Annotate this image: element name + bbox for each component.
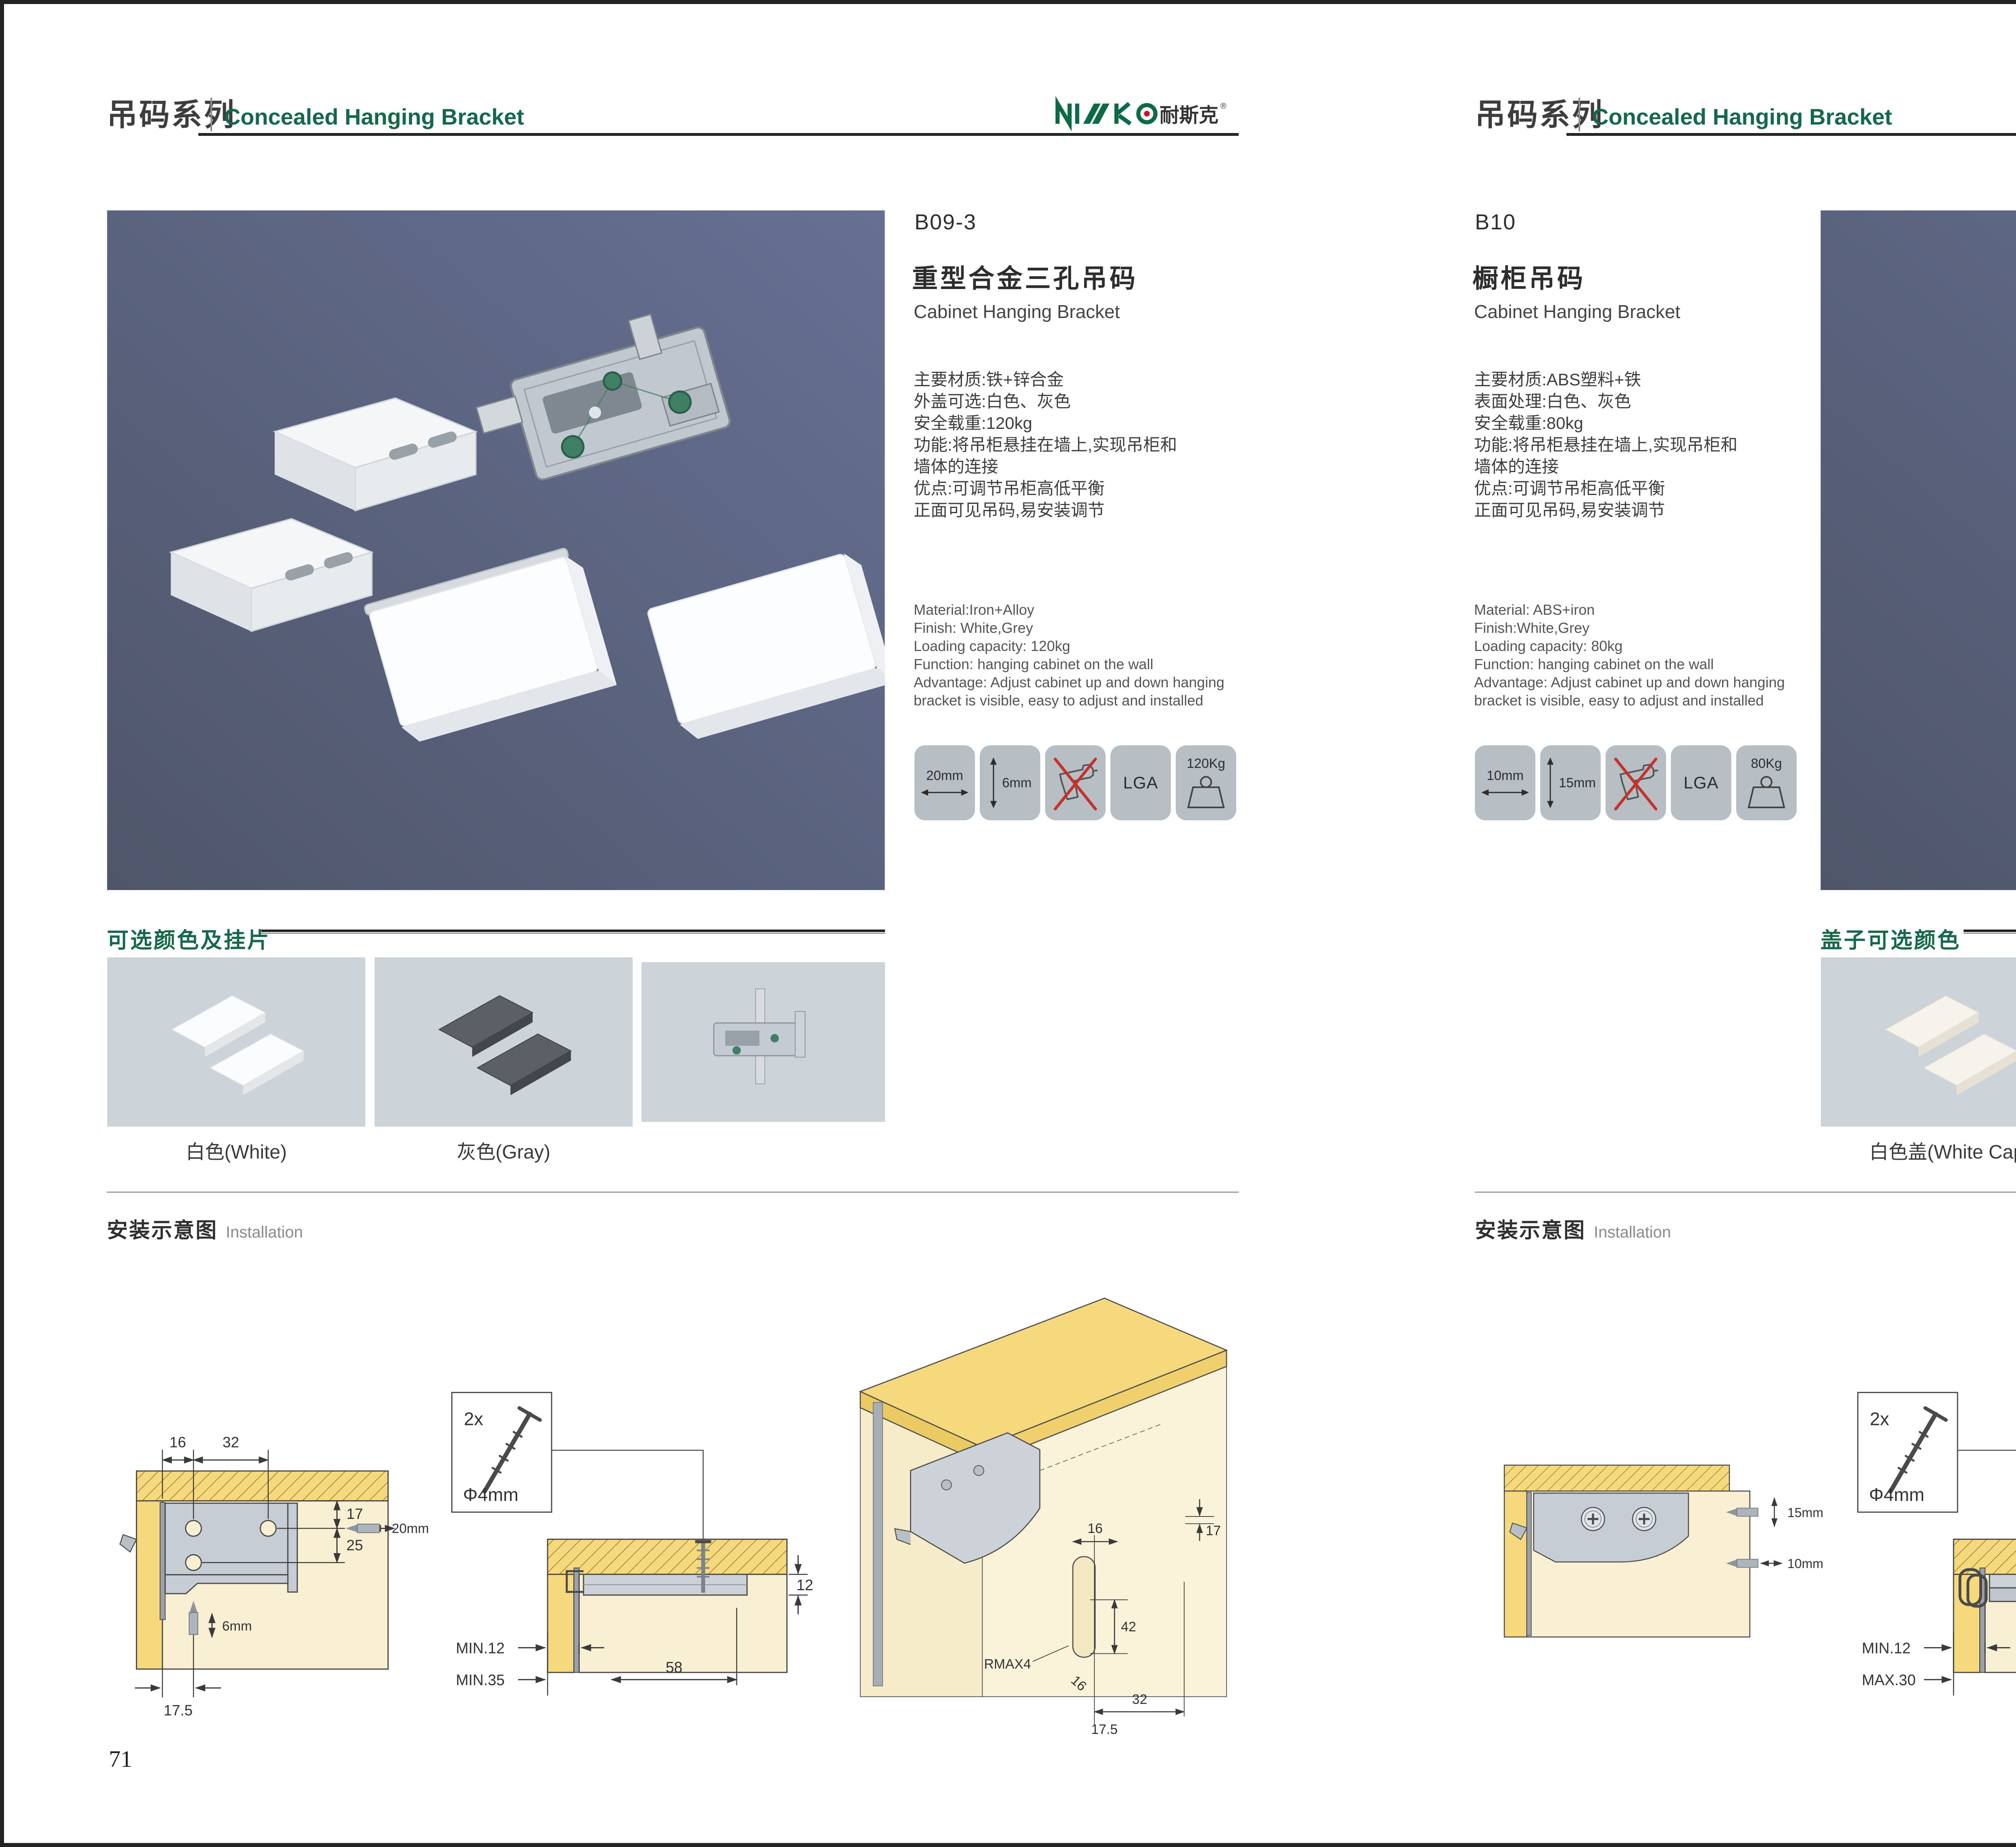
- brand-logo-left: 耐斯克 ®: [1054, 95, 1232, 132]
- spec-line: Loading capacity: 80kg: [1474, 637, 1785, 655]
- phillips-screw-1: [1581, 1508, 1605, 1531]
- load-capacity-icon: 120Kg: [1176, 745, 1236, 820]
- spec-line: 安全载重:120kg: [914, 412, 1177, 434]
- vertical-arrow-icon: [988, 757, 999, 808]
- product-name-en: Cabinet Hanging Bracket: [1474, 301, 1680, 322]
- installation-divider: [1475, 1192, 2016, 1193]
- spec-line: 优点:可调节吊柜高低平衡: [1474, 478, 1737, 499]
- spec-line: 表面处理:白色、灰色: [1474, 391, 1737, 412]
- header-rule-left: [198, 133, 1239, 136]
- screw-qty: 2x: [1870, 1409, 1889, 1429]
- spec-line: Advantage: Adjust cabinet up and down ha…: [914, 673, 1225, 691]
- installation-title-en: Installation: [1594, 1223, 1671, 1242]
- specs-zh: 主要材质:铁+锌合金 外盖可选:白色、灰色 安全载重:120kg 功能:将吊柜悬…: [914, 369, 1177, 521]
- spec-line: Loading capacity: 120kg: [914, 637, 1225, 655]
- product-code: B09-3: [914, 210, 977, 235]
- spec-line: 安全载重:80kg: [1474, 412, 1737, 434]
- series-title-zh-right: 吊码系列: [1475, 100, 1604, 131]
- dim-label: 15mm: [1787, 1505, 1823, 1520]
- no-drill-icon: [1045, 745, 1106, 820]
- dim-label: 32: [223, 1434, 239, 1451]
- spec-line: Finish:White,Grey: [1474, 619, 1785, 637]
- spec-line: 正面可见吊码,易安装调节: [1474, 499, 1737, 521]
- installation-title-zh: 安装示意图: [107, 1213, 218, 1244]
- spec-icon-row: 20mm 6mm LGA 120Kg: [914, 745, 1236, 820]
- dim-label: 12: [796, 1577, 813, 1593]
- dim-label: 17.5: [164, 1702, 193, 1719]
- swatch-label-white: 白色(White): [107, 1136, 366, 1164]
- swatch-label-gray: 灰色(Gray): [374, 1136, 633, 1164]
- no-drill-icon: [1606, 745, 1666, 820]
- specs-en: Material:Iron+Alloy Finish: White,Grey L…: [914, 601, 1225, 709]
- weight-glyph: [1742, 775, 1791, 810]
- drill-forbidden-glyph: [1611, 753, 1661, 813]
- weight-glyph: [1182, 775, 1230, 810]
- catalog-spread: 吊码系列 Concealed Hanging Bracket 耐斯克 ®: [0, 0, 2016, 1847]
- product-name-zh: 橱柜吊码: [1472, 258, 1585, 295]
- spec-line: 优点:可调节吊柜高低平衡: [914, 478, 1177, 499]
- swatch-white: [107, 957, 366, 1127]
- install-diagram-screws-left: 2x Φ4mm 12 MIN.12 MIN.35 58: [440, 1369, 815, 1712]
- dim-label: 17.5: [1091, 1722, 1118, 1737]
- spec-line: 主要材质:铁+锌合金: [914, 369, 1177, 391]
- spec-line: 墙体的连接: [914, 456, 1177, 478]
- spec-line: Function: hanging cabinet on the wall: [1474, 655, 1785, 673]
- installation-title: 安装示意图 Installation: [1475, 1213, 1671, 1244]
- certification-icon: LGA: [1671, 745, 1731, 820]
- product-name-en: Cabinet Hanging Bracket: [914, 301, 1120, 322]
- swatch-label-white-cap: 白色盖(White Cap): [1820, 1136, 2016, 1164]
- screw-diameter: Φ4mm: [463, 1485, 518, 1505]
- horizontal-arrow-icon: [921, 787, 968, 798]
- series-title-en-right: Concealed Hanging Bracket: [1592, 106, 1892, 128]
- certification-icon: LGA: [1110, 745, 1171, 820]
- dim-label: 58: [666, 1659, 683, 1676]
- install-diagram-3d-left: 16 17 42 RMAX4 16 32 17.5: [839, 1284, 1234, 1740]
- install-diagram-section-left: 16 32 17 25 20mm 6mm 17.5: [109, 1427, 431, 1726]
- product-photo-b09-3: [107, 210, 885, 890]
- spec-line: Finish: White,Grey: [914, 619, 1225, 637]
- horizontal-arrow-icon: [1481, 787, 1529, 798]
- hook-glyph: [120, 1535, 137, 1552]
- colors-section-title: 可选颜色及挂片: [107, 922, 271, 954]
- colors-section-title: 盖子可选颜色: [1820, 922, 1961, 954]
- spec-line: 功能:将吊柜悬挂在墙上,实现吊柜和: [1474, 434, 1737, 456]
- swatch-hanging-plate: [641, 957, 885, 1127]
- spec-line: Function: hanging cabinet on the wall: [914, 655, 1225, 673]
- product-photo-b10: [1820, 210, 2016, 890]
- header-divider-right: [1579, 98, 1580, 131]
- dim-label: MAX.30: [1862, 1672, 1916, 1689]
- panel-thickness-icon: 6mm: [980, 745, 1040, 820]
- load-capacity-icon: 80Kg: [1736, 745, 1797, 820]
- dim-label: MIN.12: [1862, 1639, 1911, 1656]
- dim-label: 17: [346, 1505, 363, 1522]
- spec-line: Material:Iron+Alloy: [914, 601, 1225, 619]
- swatch-gray: [374, 957, 633, 1127]
- dim-label: 6mm: [222, 1619, 252, 1634]
- panel-thickness-icon: 15mm: [1540, 745, 1601, 820]
- logo-zh: 耐斯克: [1160, 104, 1218, 126]
- spec-line: 功能:将吊柜悬挂在墙上,实现吊柜和: [914, 434, 1177, 456]
- dim-label: 20mm: [392, 1521, 429, 1536]
- drill-forbidden-glyph: [1050, 753, 1100, 813]
- spec-line: 正面可见吊码,易安装调节: [914, 499, 1177, 521]
- specs-en: Material: ABS+iron Finish:White,Grey Loa…: [1474, 601, 1785, 709]
- installation-divider: [107, 1192, 1239, 1193]
- colors-section-rule: [1964, 930, 2016, 934]
- dim-label: 16: [169, 1434, 186, 1451]
- installation-title-zh: 安装示意图: [1475, 1213, 1586, 1244]
- logo-registered-mark: ®: [1220, 102, 1227, 110]
- panel-width-icon: 20mm: [914, 745, 975, 820]
- series-title-zh-left: 吊码系列: [107, 100, 236, 131]
- installation-title: 安装示意图 Installation: [107, 1213, 303, 1244]
- dim-label: RMAX4: [984, 1657, 1031, 1672]
- screw-diameter: Φ4mm: [1869, 1485, 1924, 1505]
- spec-line: bracket is visible, easy to adjust and i…: [1474, 691, 1785, 709]
- spec-line: Material: ABS+iron: [1474, 601, 1785, 619]
- dim-label: 32: [1132, 1692, 1148, 1707]
- install-diagram-screws-right: 2x Φ4mm 18 MIN.12 MAX.30 67: [1846, 1369, 2016, 1712]
- header-rule-right: [1566, 133, 2016, 136]
- phillips-screw-2: [1633, 1508, 1656, 1531]
- spec-line: Advantage: Adjust cabinet up and down ha…: [1474, 673, 1785, 691]
- page-number-left: 71: [109, 1745, 132, 1772]
- screw-qty: 2x: [464, 1409, 483, 1429]
- dim-label: 10mm: [1787, 1556, 1823, 1571]
- vertical-arrow-icon: [1545, 757, 1556, 808]
- dim-label: MIN.35: [456, 1672, 505, 1689]
- installation-title-en: Installation: [226, 1223, 303, 1242]
- panel-width-icon: 10mm: [1475, 745, 1535, 820]
- product-code: B10: [1475, 210, 1516, 235]
- spec-icon-row: 10mm 15mm LGA 80Kg: [1475, 745, 1797, 820]
- dim-label: 25: [346, 1537, 363, 1554]
- spec-line: 外盖可选:白色、灰色: [914, 391, 1177, 412]
- spec-line: 主要材质:ABS塑料+铁: [1474, 369, 1737, 391]
- colors-section-rule: [261, 930, 885, 934]
- install-diagram-section-right: 15mm 10mm: [1484, 1427, 1839, 1666]
- spec-line: bracket is visible, easy to adjust and i…: [914, 691, 1225, 709]
- dim-label: 16: [1087, 1521, 1103, 1536]
- product-name-zh: 重型合金三孔吊码: [912, 258, 1138, 295]
- specs-zh: 主要材质:ABS塑料+铁 表面处理:白色、灰色 安全载重:80kg 功能:将吊柜…: [1474, 369, 1737, 521]
- series-title-en-left: Concealed Hanging Bracket: [224, 106, 524, 128]
- swatch-white-cap: [1820, 957, 2016, 1127]
- logo-red-dot: [1144, 111, 1150, 116]
- spec-line: 墙体的连接: [1474, 456, 1737, 478]
- header-divider-left: [210, 98, 212, 131]
- dim-label: 42: [1121, 1619, 1136, 1635]
- dim-label: 17: [1206, 1523, 1221, 1538]
- dim-label: MIN.12: [456, 1639, 505, 1656]
